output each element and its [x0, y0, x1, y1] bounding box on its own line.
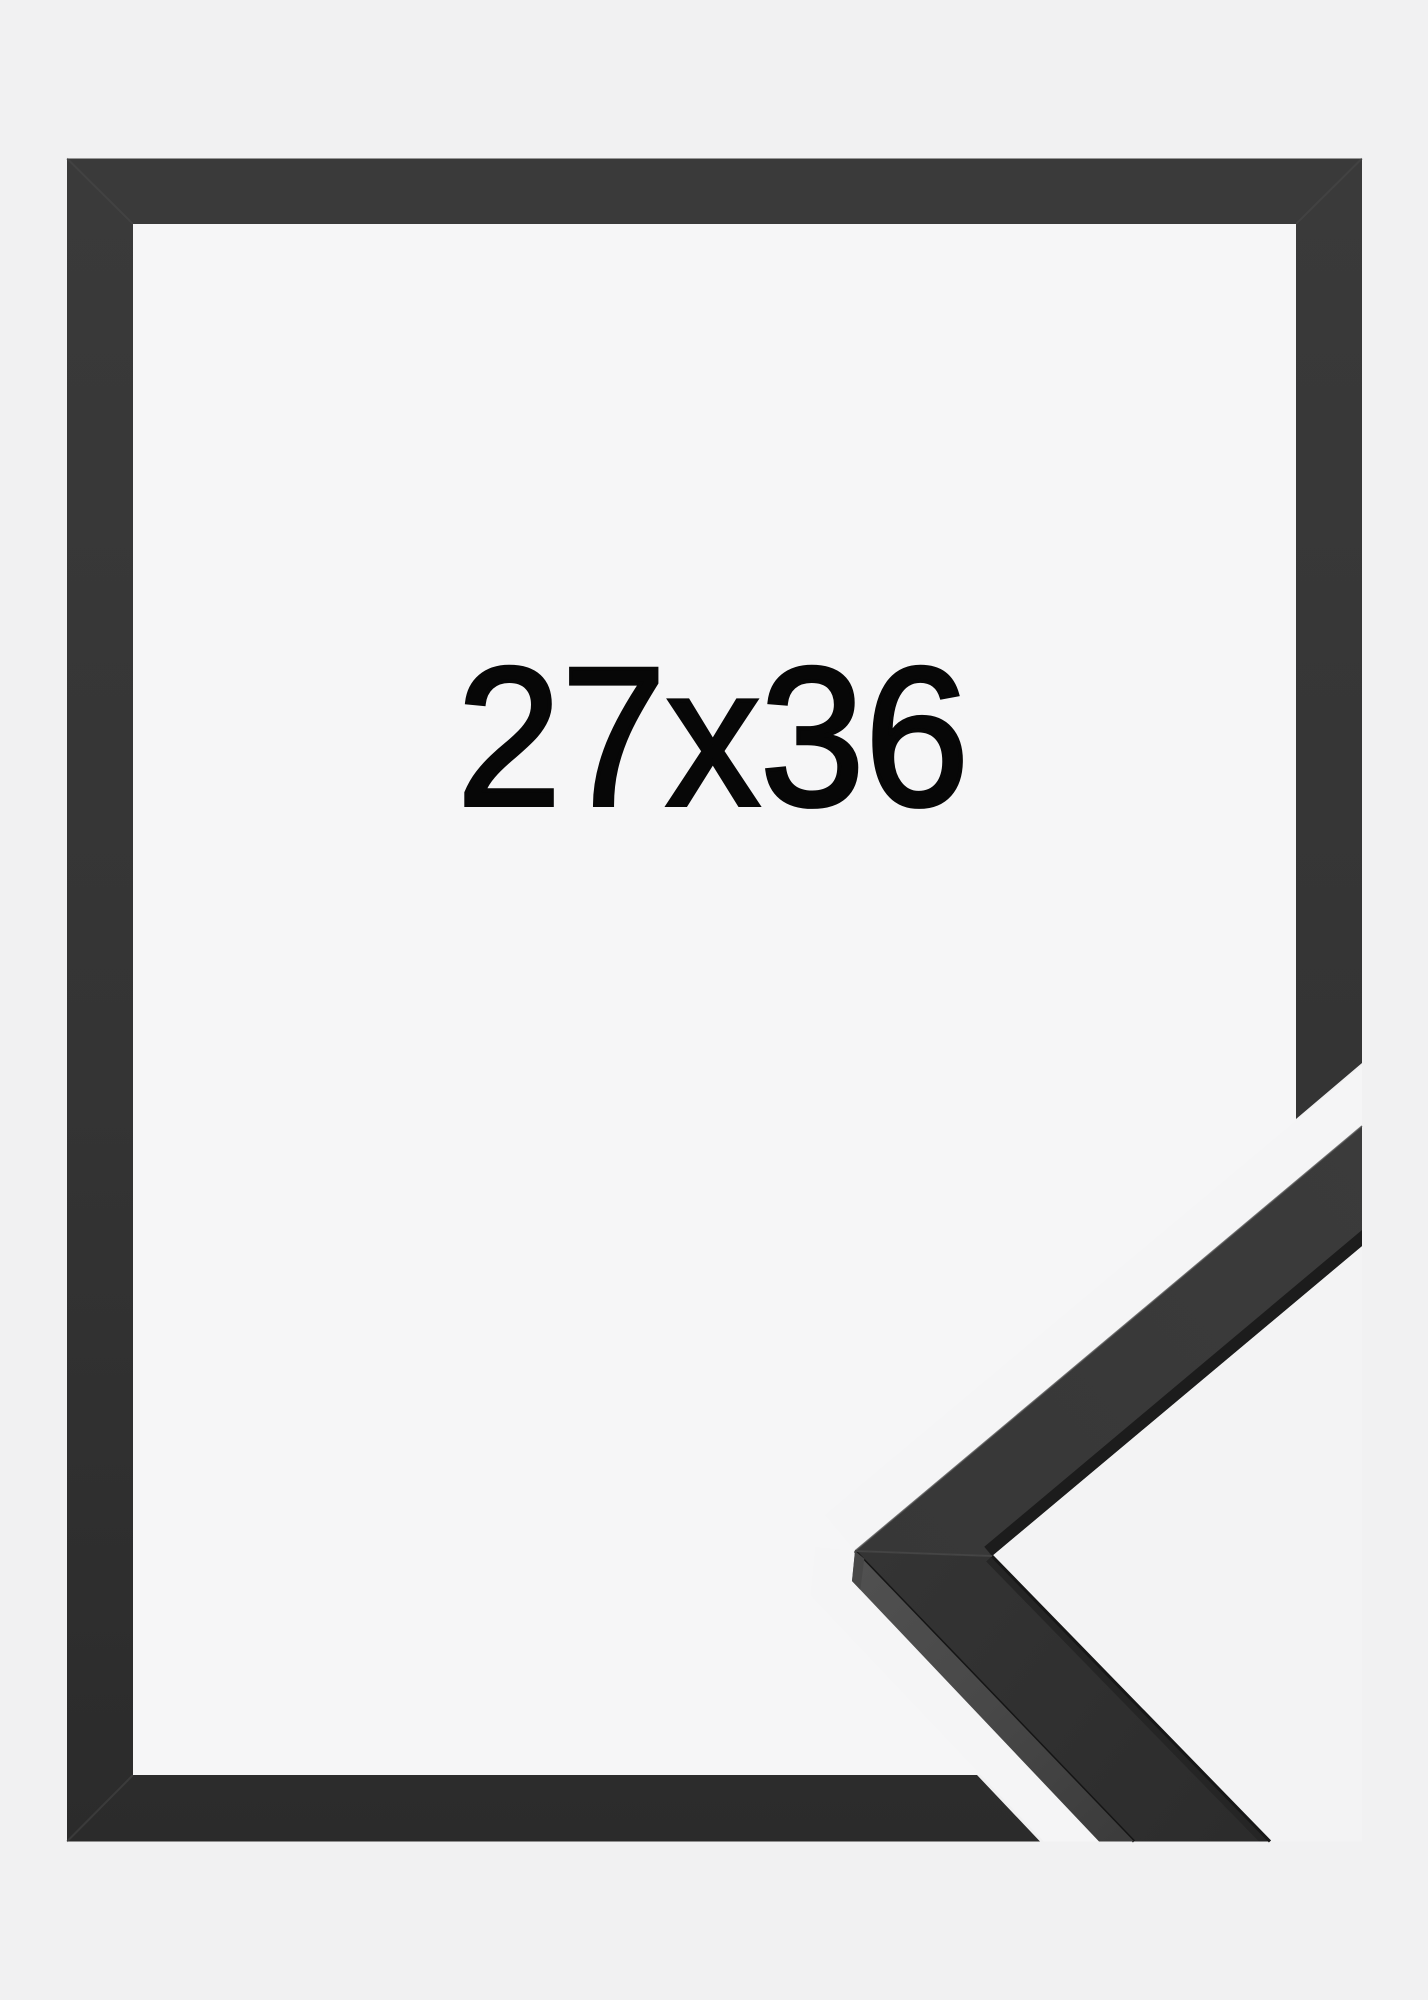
svg-text:27x36: 27x36	[457, 626, 969, 847]
